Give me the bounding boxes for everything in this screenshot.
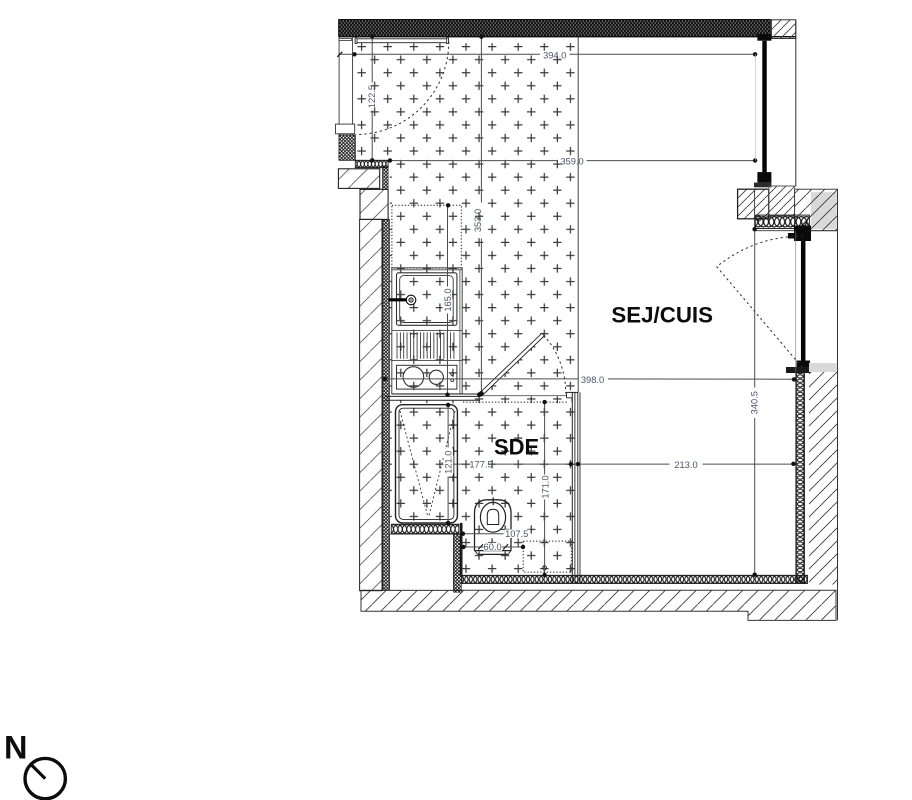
svg-text:107.5: 107.5 — [505, 529, 528, 539]
svg-text:SEJ/CUIS: SEJ/CUIS — [611, 302, 713, 327]
svg-text:165.0: 165.0 — [443, 288, 453, 311]
svg-text:60.0: 60.0 — [484, 542, 502, 552]
svg-text:340.5: 340.5 — [750, 391, 760, 414]
svg-text:171.0: 171.0 — [540, 475, 550, 498]
svg-text:213.0: 213.0 — [674, 460, 697, 470]
svg-text:N: N — [4, 730, 27, 766]
svg-text:121.0: 121.0 — [443, 451, 453, 474]
svg-text:177.5: 177.5 — [469, 459, 492, 469]
svg-text:SDE: SDE — [494, 435, 539, 460]
svg-text:359.0: 359.0 — [560, 157, 583, 167]
svg-text:353.0: 353.0 — [473, 209, 483, 232]
svg-text:398.0: 398.0 — [581, 375, 604, 385]
svg-text:122.5: 122.5 — [367, 85, 377, 108]
svg-text:394.0: 394.0 — [543, 50, 566, 60]
